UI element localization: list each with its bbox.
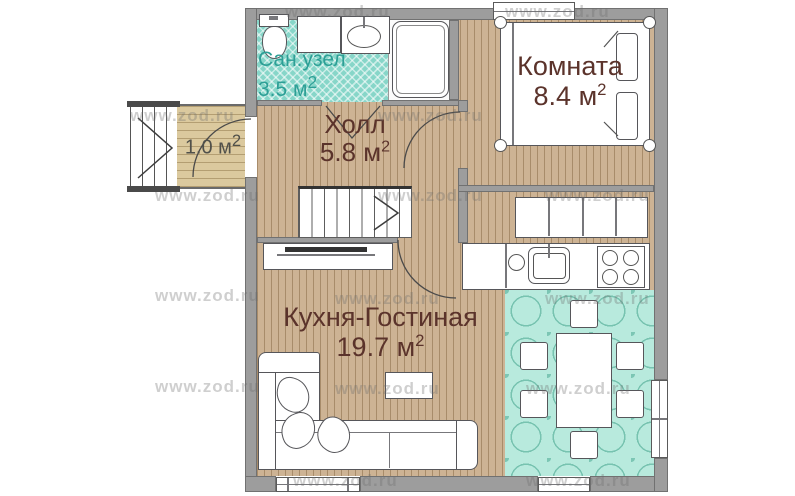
kitchen-area-sup: 2 [415,331,424,350]
hall-name: Холл [290,110,420,138]
room-area-sup: 2 [597,80,606,99]
kitchen-name: Кухня-Гостиная [258,303,503,332]
annotations-overlay [0,0,795,496]
bathroom-area-sup: 2 [307,72,317,92]
bathroom-area: 3.5 м2 [258,72,373,102]
bathroom-area-value: 3.5 м [258,78,307,101]
bathroom-label: Сан.узел 3.5 м2 [258,48,373,102]
room-label: Комната 8.4 м2 [495,52,645,111]
hall-label: Холл 5.8 м2 [290,110,420,166]
porch-area-sup: 2 [232,131,241,150]
room-area-value: 8.4 м [534,81,598,111]
room-name: Комната [495,52,645,81]
floor-plan: Сан.узел 3.5 м2 Комната 8.4 м2 Холл 5.8 … [0,0,795,496]
staircase-arrow-icon [374,196,398,230]
kitchen-area: 19.7 м2 [258,332,503,362]
bathroom-name: Сан.узел [258,48,373,72]
porch-area-value: 1.0 м [185,137,232,159]
porch-label: 1.0 м2 [178,131,248,160]
hall-area: 5.8 м2 [290,138,420,166]
hall-area-sup: 2 [381,137,390,155]
kitchen-area-value: 19.7 м [337,332,416,362]
entrance-stairs-arrow-icon [138,118,172,178]
hall-area-value: 5.8 м [320,137,381,167]
room-area: 8.4 м2 [495,81,645,111]
kitchen-label: Кухня-Гостиная 19.7 м2 [258,303,503,362]
door-arc-hall-kitchen [398,240,456,298]
